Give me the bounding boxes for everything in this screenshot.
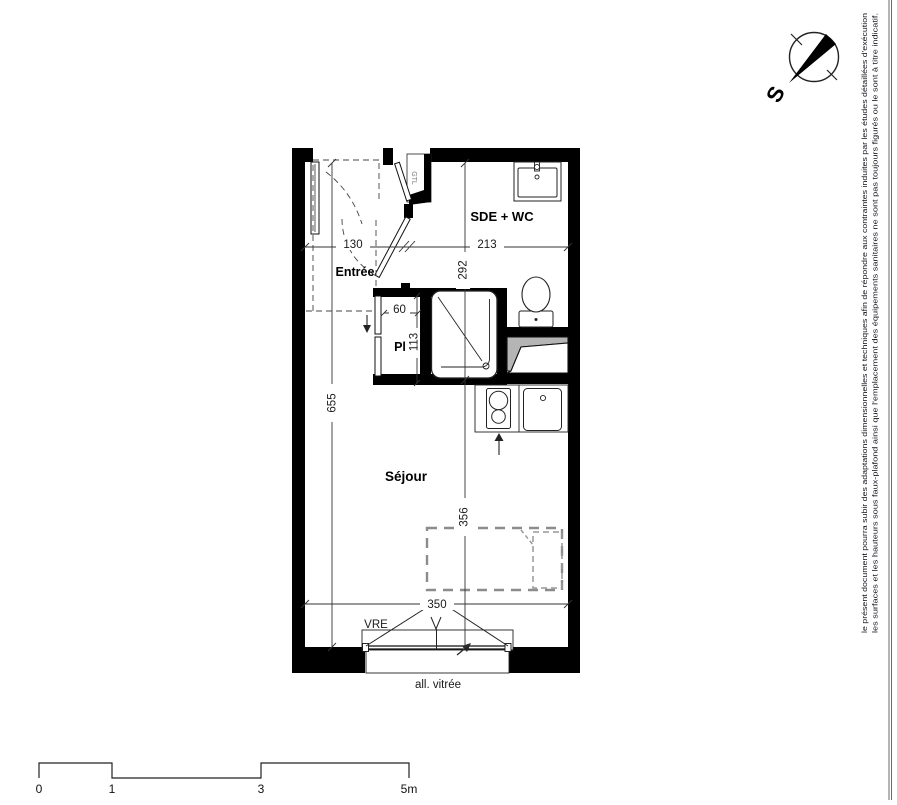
floor-plan-page: GTL: [0, 0, 897, 800]
scale-tick-5m: 5m: [401, 782, 418, 796]
window-type-label: VRE: [364, 619, 388, 631]
kitchen-arrow-icon: [495, 433, 504, 455]
disclaimer-line-1: le présent document pourra subir des ada…: [860, 13, 869, 633]
scale-tick-1: 1: [109, 782, 116, 796]
wall-segment: [420, 288, 431, 385]
window-sill-box: [366, 650, 509, 673]
wall-segment: [430, 148, 568, 162]
cooktop-icon: [487, 389, 511, 429]
gtl-label: GTL: [410, 171, 417, 185]
kitchen-sink-icon: [524, 389, 562, 431]
floor-plan-canvas: GTL: [0, 0, 897, 800]
door-swing-arc: [326, 172, 362, 224]
room-label-sejour: Séjour: [385, 469, 428, 484]
wall-segment: [509, 647, 580, 673]
room-label-closet: Pl: [394, 340, 406, 354]
wall-segment: [404, 204, 413, 218]
compass-icon: S: [761, 33, 839, 107]
toilet-bowl: [522, 277, 550, 312]
wall-segment: [292, 148, 305, 673]
wall-segment: [568, 148, 580, 673]
dim-sde-depth: 292: [458, 260, 470, 279]
dim-sde-width: 213: [477, 239, 496, 251]
room-label-sde-wc: SDE + WC: [470, 209, 534, 224]
bed-outline: [427, 528, 562, 590]
door-swing-arcs: [326, 172, 377, 276]
bed-rect: [427, 528, 562, 590]
bed-fold-mark: [521, 530, 534, 546]
dim-closet-depth: 113: [409, 333, 421, 351]
compass-tick: [791, 34, 802, 45]
dim-total-depth: 655: [327, 393, 339, 412]
wall-segment: [497, 288, 507, 385]
toilet-button: [535, 318, 538, 321]
disclaimer-line-2: les surfaces et les hauteurs sous faux-p…: [871, 13, 880, 633]
window-frame: [362, 630, 513, 650]
duct-wedge: [507, 337, 568, 373]
dim-entree-width: 130: [343, 239, 362, 251]
disclaimer-block: le présent document pourra subir des ada…: [860, 0, 892, 800]
shower-icon: [432, 291, 498, 378]
wall-segment: [383, 148, 393, 165]
entry-door-leaf: [311, 162, 319, 234]
room-label-entree: Entrée: [336, 265, 375, 279]
bed-pillow: [533, 532, 562, 588]
closet-arrow-icon: [363, 315, 371, 333]
dim-window-width: 350: [427, 599, 446, 611]
scale-tick-3: 3: [258, 782, 265, 796]
compass-tick: [827, 70, 837, 80]
room-labels: Entrée SDE + WC Pl Séjour VRE all. vitré…: [336, 209, 535, 691]
dim-sejour-depth: 356: [459, 507, 471, 526]
doors: [311, 162, 411, 277]
kitchenette: [475, 385, 568, 455]
wall-segment: [507, 373, 568, 384]
scale-tick-0: 0: [36, 782, 43, 796]
scale-bar: 0 1 3 5m: [36, 763, 418, 796]
compass-south-label: S: [761, 82, 790, 107]
closet-door-panels: [375, 296, 381, 376]
wall-segment: [507, 327, 568, 337]
window-assembly: [362, 606, 513, 673]
window-sill-label: all. vitrée: [415, 679, 461, 691]
bathroom-sink-icon: [514, 162, 561, 201]
scale-bar-line: [39, 763, 409, 778]
toilet-icon: [519, 277, 553, 327]
dim-closet-width: 60: [393, 304, 406, 316]
